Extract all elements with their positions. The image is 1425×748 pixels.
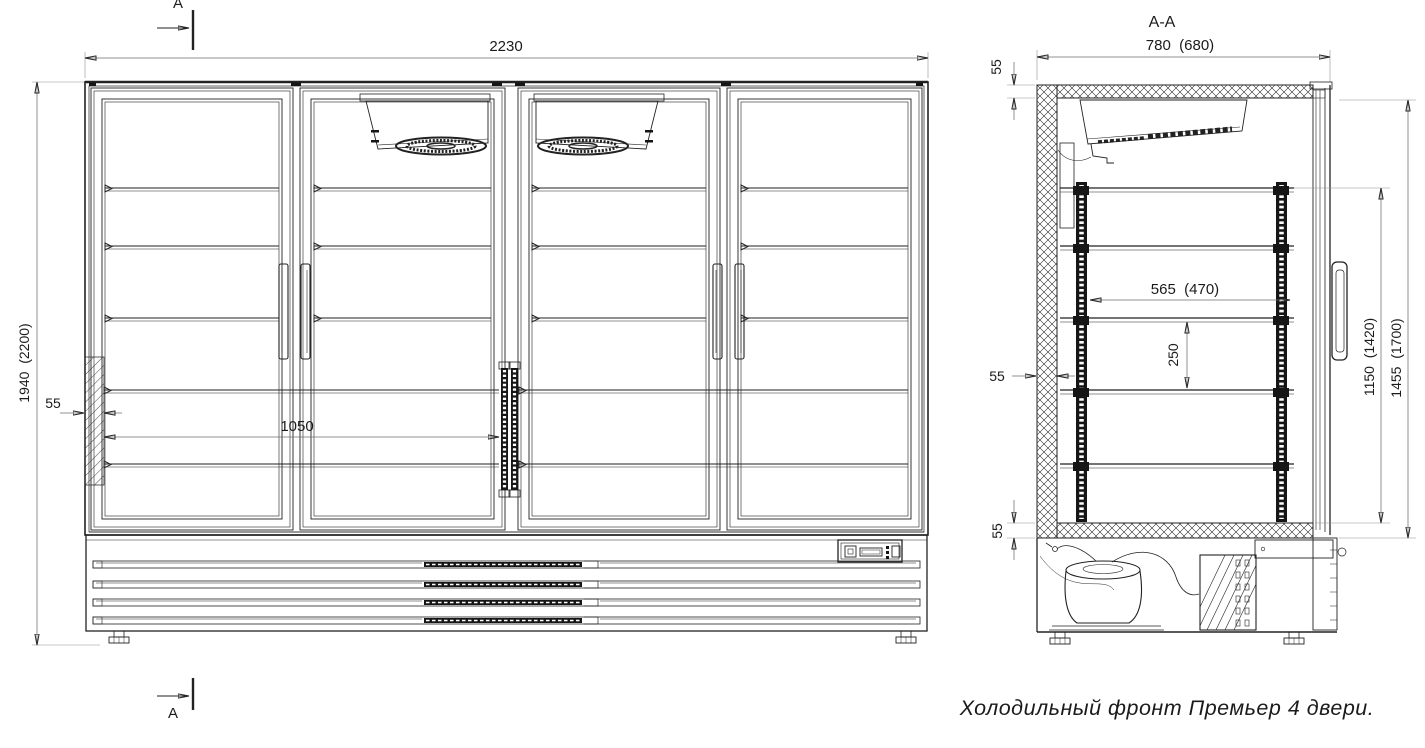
dim-bottom-wall: 55 (989, 500, 1035, 560)
section-cut-mark-bottom: A (157, 678, 193, 722)
drawing-canvas: A A 2230 1940 (2200) (0, 0, 1425, 748)
door-handles-front (279, 264, 744, 359)
ceiling-hatch (1057, 85, 1313, 98)
center-shelf-rails (499, 362, 520, 497)
controller-display (860, 548, 882, 556)
evaporator-right (534, 94, 664, 155)
front-view: A A 2230 1940 (2200) (16, 0, 928, 722)
glass-door-section (1310, 82, 1347, 630)
temperature-controller (838, 540, 902, 562)
side-wall-hatch (85, 357, 104, 485)
refrigerant-pipes (1040, 543, 1199, 595)
dim-front-wall-label: 55 (45, 395, 61, 411)
dim-width-label: 2230 (489, 38, 522, 55)
dim-back-wall-label: 55 (989, 368, 1005, 384)
floor-hatch (1057, 523, 1313, 538)
dim-shelf-depth: 565 (470) (1090, 281, 1290, 300)
dim-depth-label: 780 (680) (1146, 37, 1214, 54)
dim-bottom-wall-label: 55 (989, 523, 1005, 539)
drawing-caption: Холодильный фронт Премьер 4 двери. (959, 696, 1374, 720)
condenser (1188, 553, 1271, 632)
door-handle-section (1332, 262, 1347, 360)
electrical-panel (1255, 540, 1333, 558)
back-wall-hatch (1037, 85, 1057, 538)
dim-top-wall: 55 (988, 59, 1035, 120)
section-cut-mark-top: A (157, 0, 193, 50)
dim-shelf-depth-label: 565 (470) (1151, 281, 1219, 298)
front-feet (109, 631, 916, 643)
dim-back-wall: 55 (989, 368, 1075, 384)
section-view: A-A 780 (680) 55 55 (988, 14, 1416, 644)
dim-shelf-pitch-label: 250 (1165, 343, 1181, 367)
dim-depth: 780 (680) (1037, 37, 1330, 82)
machine-compartment (1037, 538, 1337, 644)
dim-shelf-width: 1050 (104, 418, 499, 437)
compressor (1049, 561, 1164, 630)
shelf-rails-section (1073, 182, 1289, 522)
section-feet (1050, 632, 1304, 644)
dim-shelf-pitch: 250 (1165, 322, 1187, 388)
section-letter-top: A (173, 0, 183, 12)
dim-overall-height-section-label: 1455 (1700) (1388, 318, 1404, 397)
dim-inner-height: 1150 (1420) (1294, 188, 1390, 523)
base-grille (86, 535, 927, 631)
technical-drawing: A A 2230 1940 (2200) (0, 0, 1425, 748)
evaporator-left (360, 94, 490, 155)
section-title: A-A (1149, 14, 1176, 31)
dim-front-wall: 55 (45, 395, 122, 413)
section-letter-bottom: A (168, 705, 178, 722)
dim-shelf-width-label: 1050 (280, 418, 313, 435)
dim-inner-height-label: 1150 (1420) (1361, 318, 1377, 396)
dim-overall-width: 2230 (85, 38, 928, 78)
dim-overall-height-section: 1455 (1700) (1339, 100, 1416, 538)
shelves-section (1060, 188, 1294, 468)
dim-top-wall-label: 55 (988, 59, 1004, 75)
dim-height-label: 1940 (2200) (16, 323, 32, 402)
drain-pipe (1091, 144, 1114, 163)
